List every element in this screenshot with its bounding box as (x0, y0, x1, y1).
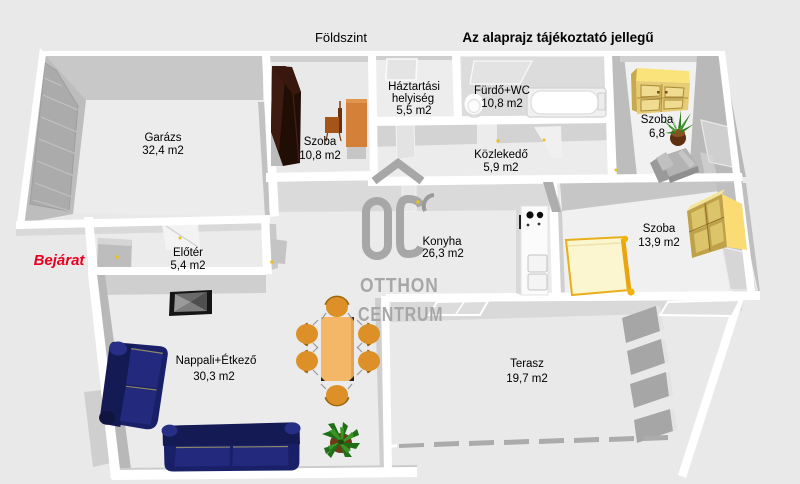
svg-text:6,8: 6,8 (649, 128, 665, 140)
svg-text:10,8 m2: 10,8 m2 (481, 98, 523, 110)
svg-text:5,9 m2: 5,9 m2 (483, 162, 518, 174)
svg-text:5,5 m2: 5,5 m2 (396, 105, 431, 117)
svg-text:Előtér: Előtér (173, 247, 203, 259)
svg-text:26,3 m2: 26,3 m2 (422, 248, 464, 260)
svg-text:Nappali+Étkező: Nappali+Étkező (176, 354, 257, 367)
svg-text:Az alaprajz tájékoztató jelleg: Az alaprajz tájékoztató jellegű (462, 30, 653, 45)
svg-text:10,8 m2: 10,8 m2 (299, 150, 341, 162)
svg-text:Bejárat: Bejárat (34, 252, 86, 269)
svg-text:Földszint: Földszint (315, 30, 367, 45)
svg-text:Terasz: Terasz (510, 358, 544, 370)
svg-text:30,3 m2: 30,3 m2 (193, 371, 235, 383)
svg-text:Konyha: Konyha (422, 236, 462, 248)
svg-text:19,7 m2: 19,7 m2 (506, 373, 548, 385)
svg-text:Háztartási: Háztartási (388, 81, 440, 93)
svg-text:Közlekedő: Közlekedő (474, 149, 528, 161)
svg-text:helyiség: helyiség (392, 93, 434, 105)
svg-text:13,9 m2: 13,9 m2 (638, 237, 680, 249)
svg-text:Fürdő+WC: Fürdő+WC (474, 85, 530, 97)
svg-text:5,4 m2: 5,4 m2 (170, 260, 205, 272)
svg-text:Szoba: Szoba (643, 223, 676, 235)
svg-text:Szoba: Szoba (304, 136, 337, 148)
svg-text:Garázs: Garázs (144, 132, 181, 144)
svg-text:32,4 m2: 32,4 m2 (142, 145, 184, 157)
svg-text:Szoba: Szoba (641, 114, 674, 126)
svg-text:OTTHON: OTTHON (360, 275, 439, 298)
svg-text:CENTRUM: CENTRUM (358, 302, 443, 325)
